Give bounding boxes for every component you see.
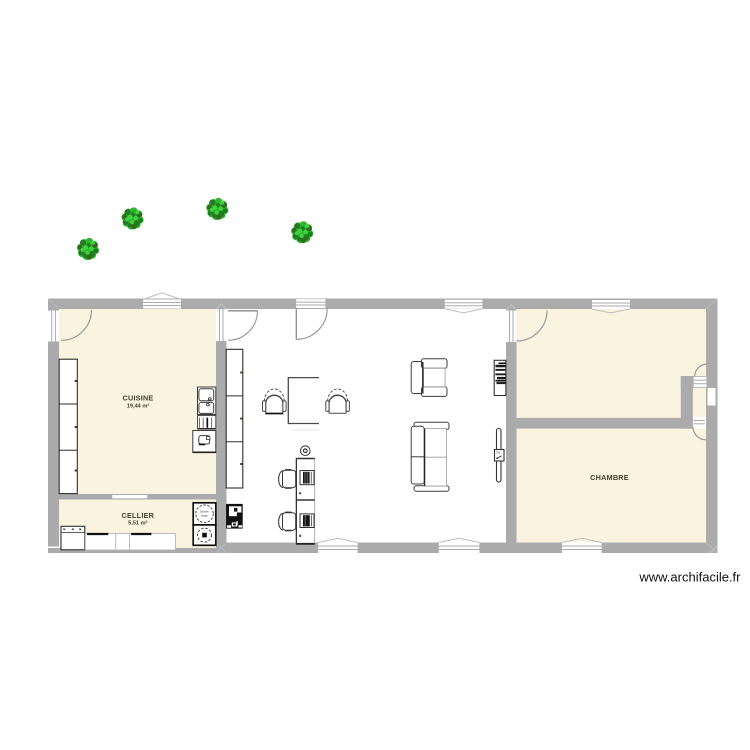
svg-text:linge: linge (201, 514, 208, 518)
svg-text:19,44 m²: 19,44 m² (127, 403, 150, 410)
svg-text:CELLIER: CELLIER (121, 511, 154, 520)
svg-text:TV: TV (496, 451, 501, 455)
svg-text:CHAMBRE: CHAMBRE (590, 473, 629, 482)
svg-text:www.archifacile.fr: www.archifacile.fr (638, 570, 741, 585)
svg-text:5,51 m²: 5,51 m² (128, 520, 147, 527)
svg-text:CUISINE: CUISINE (123, 394, 154, 403)
